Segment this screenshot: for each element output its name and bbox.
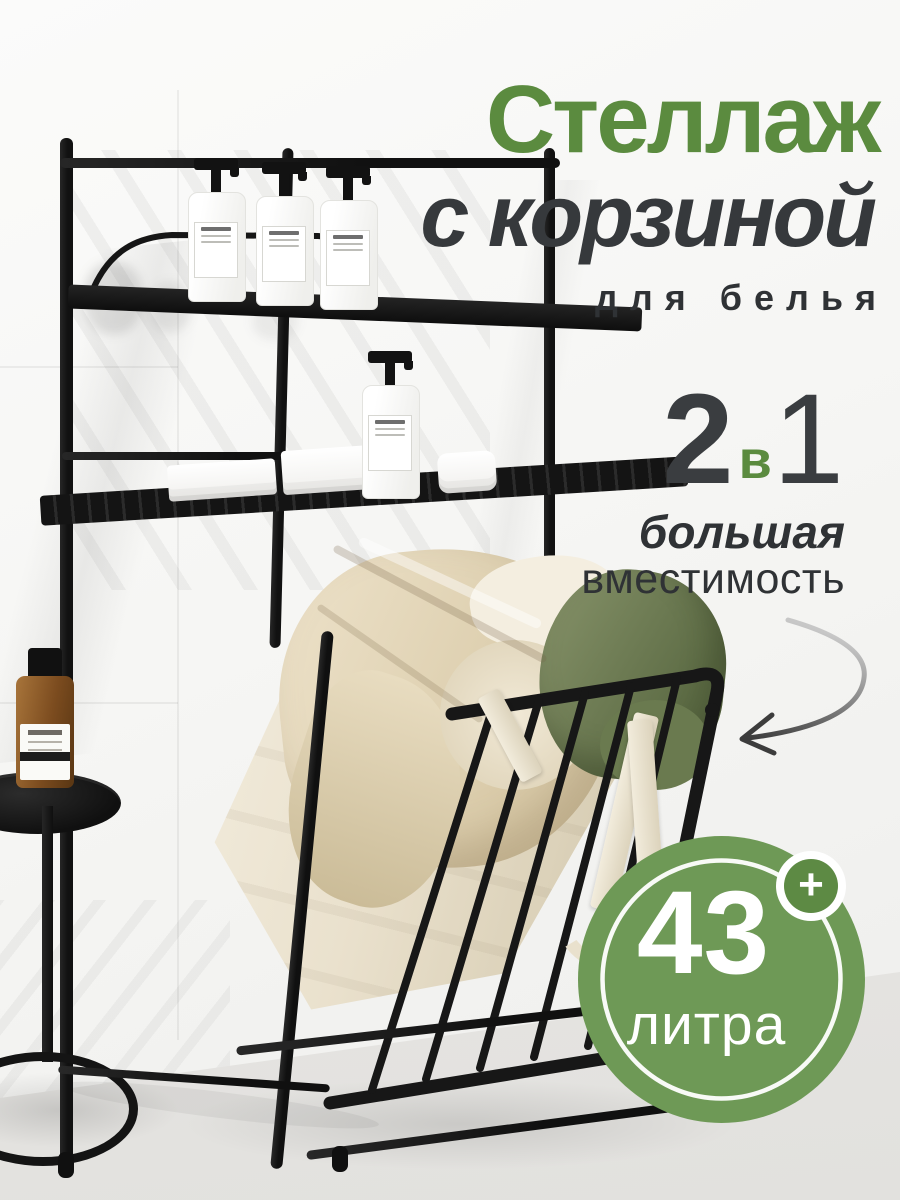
capacity-line1: большая bbox=[581, 508, 845, 556]
ratio-2-in-1: 2 в 1 bbox=[662, 388, 840, 493]
product-subtitle: для белья bbox=[420, 280, 888, 316]
capacity-line2: вместимость bbox=[581, 556, 845, 603]
ratio-left: 2 bbox=[662, 388, 733, 493]
rack-foot bbox=[332, 1146, 348, 1172]
rack-foot bbox=[58, 1152, 74, 1178]
product-title: Стеллаж с корзиной для белья bbox=[420, 72, 878, 316]
basket-hinge bbox=[705, 703, 719, 717]
product-title-line2: с корзиной bbox=[420, 172, 878, 260]
capacity-badge: 43 литра + bbox=[578, 836, 865, 1123]
ratio-right: 1 bbox=[773, 388, 840, 493]
plus-icon: + bbox=[784, 859, 838, 913]
capacity-caption: большая вместимость bbox=[581, 508, 845, 604]
product-title-line1: Стеллаж bbox=[420, 72, 878, 168]
ratio-middle: в bbox=[739, 433, 772, 487]
product-card: Стеллаж с корзиной для белья 2 в 1 больш… bbox=[0, 0, 900, 1200]
badge-plus-circle: + bbox=[776, 851, 846, 921]
